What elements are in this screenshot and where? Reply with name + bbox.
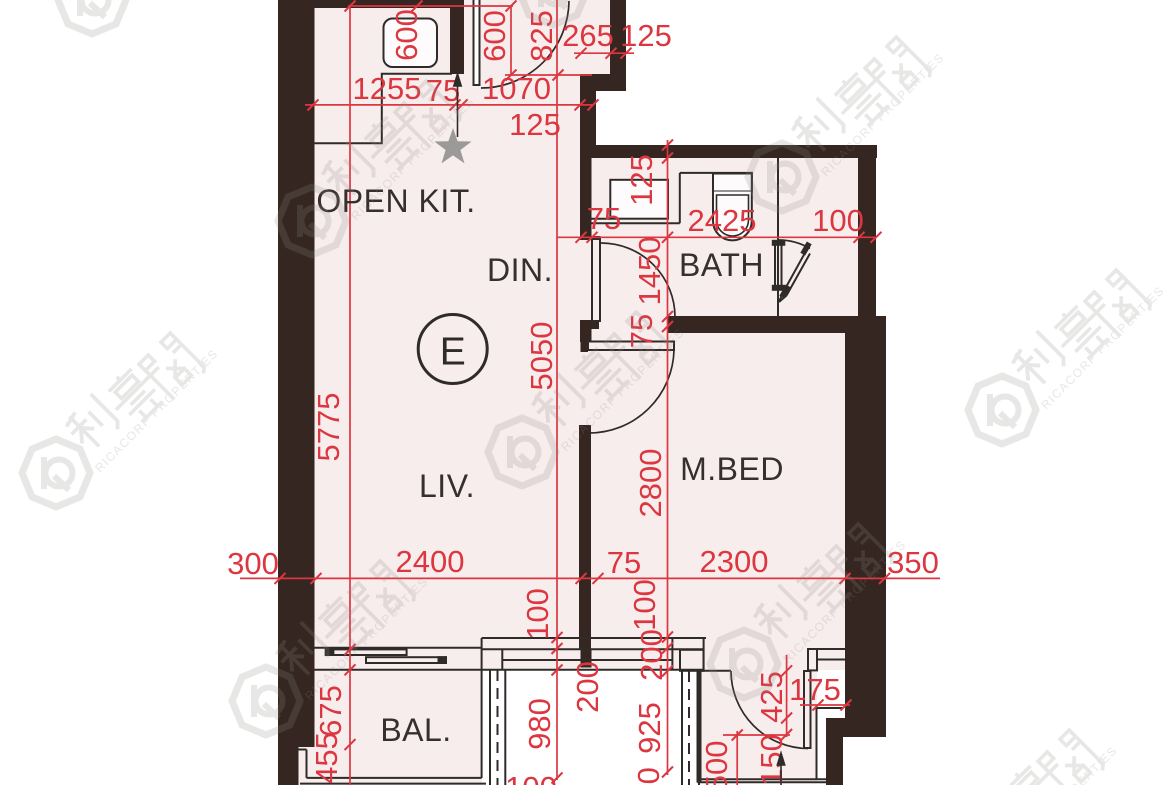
svg-text:1255: 1255: [353, 71, 422, 106]
svg-text:1450: 1450: [632, 237, 667, 306]
svg-text:100: 100: [812, 203, 864, 238]
svg-text:150: 150: [631, 767, 666, 785]
svg-text:600: 600: [477, 10, 512, 62]
svg-text:LIV.: LIV.: [419, 468, 475, 504]
svg-text:BATH: BATH: [679, 247, 764, 283]
svg-text:600: 600: [389, 9, 424, 61]
svg-text:100: 100: [627, 579, 662, 631]
svg-text:200: 200: [570, 661, 605, 713]
svg-text:1070: 1070: [482, 71, 551, 106]
svg-text:100: 100: [505, 770, 557, 785]
svg-text:200: 200: [634, 629, 669, 681]
svg-text:BAL.: BAL.: [380, 712, 451, 748]
svg-text:2300: 2300: [700, 544, 769, 579]
svg-text:455: 455: [309, 732, 344, 784]
svg-text:E: E: [440, 331, 466, 374]
svg-text:5775: 5775: [311, 393, 346, 462]
svg-text:125: 125: [624, 154, 659, 206]
svg-text:DIN.: DIN.: [487, 252, 553, 288]
svg-text:2800: 2800: [633, 449, 668, 518]
svg-text:300: 300: [227, 546, 279, 581]
svg-text:175: 175: [789, 672, 841, 707]
svg-text:1500: 1500: [699, 741, 734, 785]
svg-text:M.BED: M.BED: [680, 451, 784, 487]
svg-text:265: 265: [562, 18, 614, 53]
svg-text:2425: 2425: [688, 203, 757, 238]
svg-text:925: 925: [632, 702, 667, 754]
svg-text:75: 75: [587, 201, 621, 236]
svg-text:125: 125: [509, 107, 561, 142]
svg-text:5050: 5050: [524, 322, 559, 391]
svg-text:2400: 2400: [396, 544, 465, 579]
svg-text:980: 980: [522, 698, 557, 750]
svg-text:125: 125: [620, 18, 672, 53]
svg-text:75: 75: [607, 545, 641, 580]
svg-text:100: 100: [520, 588, 555, 640]
